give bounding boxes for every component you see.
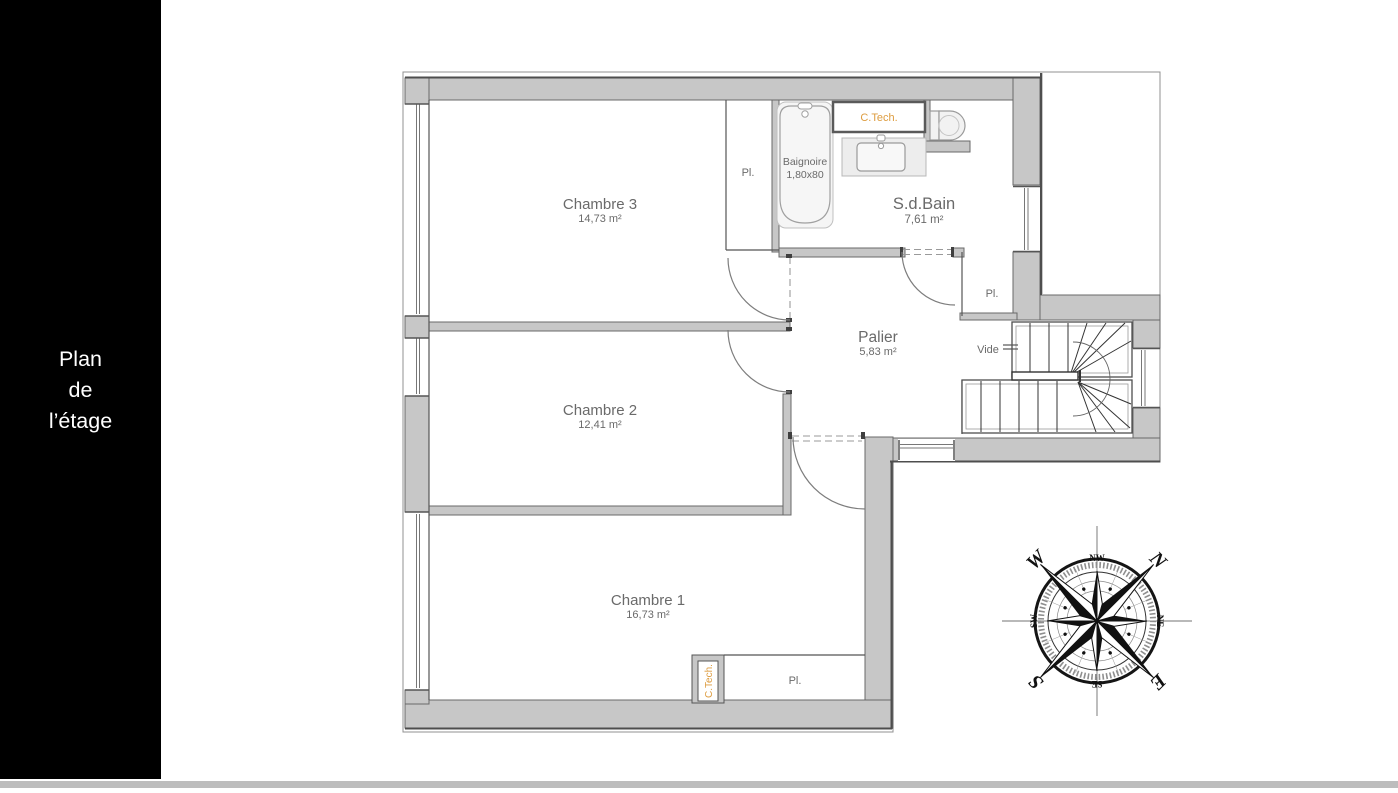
compass-southwest-label: SW [1029, 614, 1039, 628]
page-title: Plan de l’étage [0, 344, 161, 437]
floor-plan: Chambre 3 14,73 m² Chambre 2 12,41 m² Ch… [0, 0, 1398, 788]
room-label-chambre-3: Chambre 3 [563, 196, 637, 213]
page-title-line1: Plan [0, 344, 161, 375]
sink [842, 135, 926, 176]
room-label-sdbain: S.d.Bain [893, 195, 955, 213]
room-area-sdbain: 7,61 m² [905, 214, 944, 226]
room-area-chambre-1: 16,73 m² [626, 609, 670, 621]
page-title-line2: de [0, 375, 161, 406]
compass-northwest-label: NW [1089, 553, 1105, 563]
tech-duct-top-label: C.Tech. [860, 112, 897, 124]
toilet [930, 111, 965, 140]
room-area-palier: 5,83 m² [859, 346, 897, 358]
door-arcs [728, 252, 955, 509]
compass-northeast-label: NE [1155, 615, 1165, 628]
closet-label-palier: Pl. [986, 288, 999, 300]
bathtub-label: Baignoire [783, 156, 828, 168]
page-title-line3: l’étage [0, 406, 161, 437]
stair-handrail [1012, 370, 1080, 382]
compass-southeast-label: SE [1091, 679, 1102, 689]
room-label-chambre-1: Chambre 1 [611, 592, 685, 609]
compass-rose: N E S W NW NE SE SW [960, 484, 1234, 758]
slide-bottom-rule [0, 781, 1398, 788]
void-label: Vide [977, 344, 999, 356]
room-label-palier: Palier [858, 329, 898, 346]
closet-label-chambre3: Pl. [742, 167, 755, 179]
tech-duct-bottom-label: C.Tech. [704, 664, 715, 698]
closet-label-chambre1: Pl. [789, 675, 802, 687]
title-sidebar: Plan de l’étage [0, 0, 161, 779]
staircase [962, 322, 1132, 433]
bathtub-size-label: 1,80x80 [786, 169, 824, 181]
room-area-chambre-3: 14,73 m² [578, 213, 622, 225]
room-label-chambre-2: Chambre 2 [563, 402, 637, 419]
room-area-chambre-2: 12,41 m² [578, 419, 622, 431]
